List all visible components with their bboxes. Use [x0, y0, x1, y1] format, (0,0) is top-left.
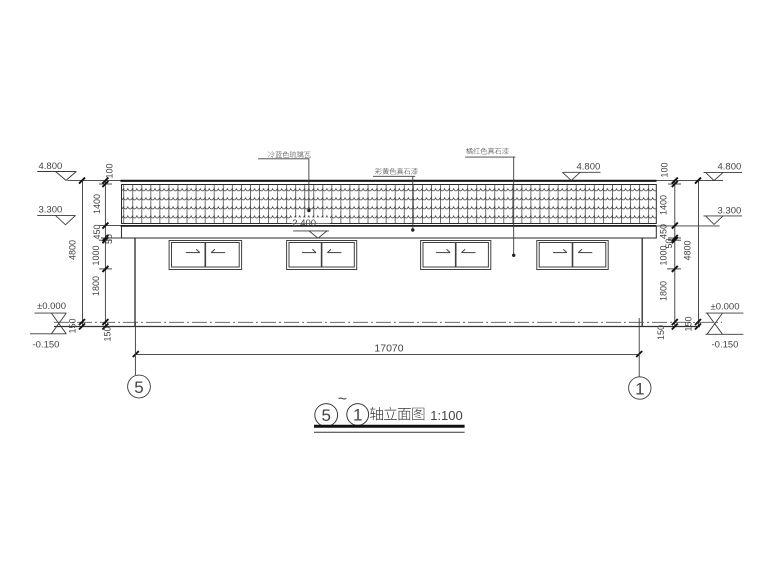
svg-text:1: 1 — [353, 406, 362, 425]
svg-text:±0.000: ±0.000 — [37, 301, 66, 312]
svg-text:±0.000: ±0.000 — [711, 302, 740, 313]
svg-text:1:100: 1:100 — [430, 408, 463, 423]
svg-text:1800: 1800 — [91, 276, 101, 296]
svg-text:100: 100 — [660, 162, 670, 177]
svg-text:3.300: 3.300 — [718, 205, 742, 216]
svg-text:1000: 1000 — [91, 245, 101, 265]
svg-text:17070: 17070 — [374, 343, 403, 355]
svg-text:4.800: 4.800 — [718, 161, 742, 172]
svg-text:150: 150 — [684, 316, 694, 331]
svg-text:3.300: 3.300 — [39, 205, 63, 216]
svg-text:50: 50 — [104, 234, 114, 244]
svg-text:4800: 4800 — [68, 240, 78, 260]
svg-text:150: 150 — [68, 318, 78, 333]
svg-text:4800: 4800 — [683, 240, 693, 260]
svg-text:1000: 1000 — [659, 245, 669, 265]
svg-text:4.800: 4.800 — [39, 161, 63, 172]
svg-text:-0.150: -0.150 — [33, 340, 60, 351]
svg-text:-0.150: -0.150 — [712, 340, 739, 351]
svg-text:1800: 1800 — [659, 281, 669, 301]
svg-text:450: 450 — [659, 224, 669, 239]
svg-text:1400: 1400 — [659, 195, 669, 215]
svg-text:1: 1 — [635, 379, 644, 398]
svg-text:~: ~ — [338, 391, 347, 408]
svg-text:1400: 1400 — [92, 194, 102, 214]
svg-text:100: 100 — [105, 163, 115, 178]
svg-text:450: 450 — [92, 224, 102, 239]
svg-text:150: 150 — [656, 325, 666, 340]
svg-text:5: 5 — [321, 406, 330, 425]
svg-text:5: 5 — [134, 378, 143, 397]
svg-text:2.400: 2.400 — [292, 218, 316, 229]
svg-text:4.800: 4.800 — [577, 162, 601, 173]
svg-text:150: 150 — [103, 326, 113, 341]
